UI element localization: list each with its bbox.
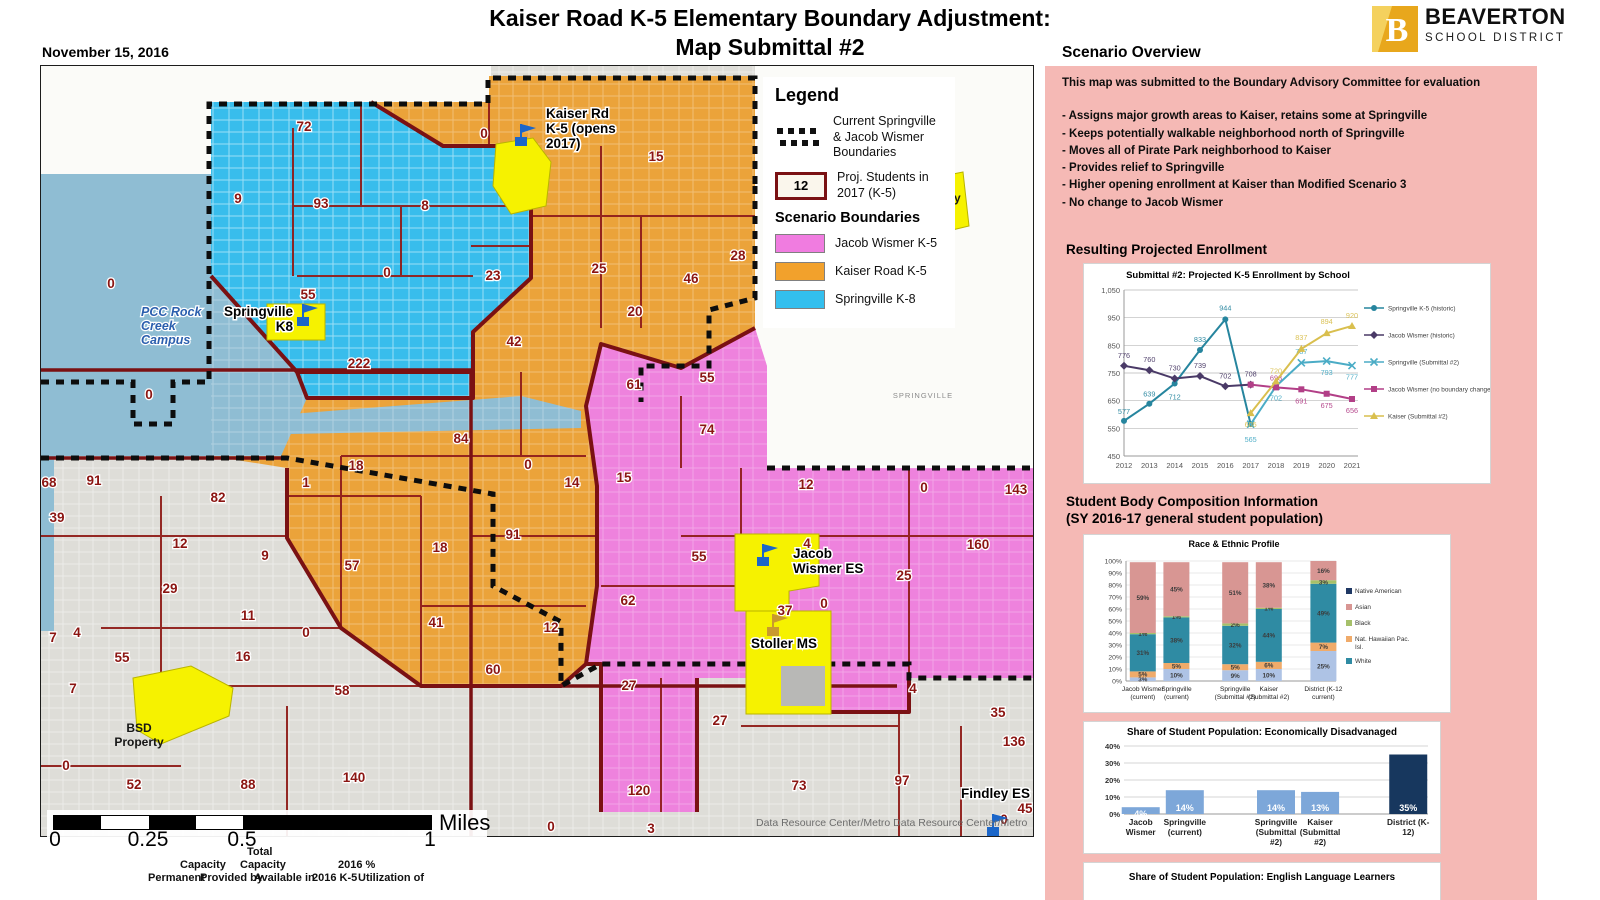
region-student-count: 57: [344, 558, 359, 573]
school-label: K-5 (opens: [546, 121, 616, 136]
scenario-intro: This map was submitted to the Boundary A…: [1062, 75, 1492, 92]
chart-element: 5%: [1231, 664, 1241, 671]
chart-element: 59%: [1136, 594, 1149, 601]
map-date: November 15, 2016: [42, 44, 169, 60]
place-label-bsd: BSD: [126, 721, 152, 735]
chart-element: [1197, 347, 1203, 353]
region-student-count: 91: [505, 527, 521, 542]
region-student-count: 0: [480, 126, 488, 141]
chart-element: 691: [1295, 396, 1307, 405]
chart-element: 20%: [1105, 776, 1120, 785]
region-student-count: 12: [543, 620, 558, 635]
region-student-count: 29: [162, 581, 177, 596]
region-student-count: 18: [348, 458, 364, 473]
chart-element: Jacob Wismer (historic): [1388, 332, 1455, 339]
region-student-count: 143: [1005, 482, 1028, 497]
chart-element: 5%: [1138, 671, 1148, 678]
region-student-count: 73: [791, 778, 807, 793]
chart-element: 35%: [1399, 803, 1417, 813]
chart-element: Springville (Submittal #2): [1388, 359, 1459, 366]
legend-current-boundaries: Current Springville & Jacob Wismer Bound…: [775, 114, 943, 161]
chart-element: 920: [1346, 311, 1358, 320]
region-student-count: 0: [547, 819, 555, 834]
chart-element: [1124, 366, 1251, 386]
school-label: Springville: [224, 304, 294, 319]
region-student-count: 27: [712, 713, 727, 728]
chart-element: Springville: [1164, 817, 1207, 827]
scenario-bullet: - No change to Jacob Wismer: [1062, 195, 1511, 212]
zone-label: Kaiser Road K-5: [835, 264, 927, 280]
region-student-count: 0: [383, 265, 391, 280]
region-student-count: 25: [896, 568, 912, 583]
side-panel: Scenario Overview This map was submitted…: [1045, 44, 1537, 900]
place-label-pcc: Campus: [141, 333, 190, 347]
chart-element: 3%: [1319, 579, 1329, 586]
chart-element: 702: [1270, 393, 1282, 402]
chart-element: 45%: [1170, 586, 1183, 593]
chart-element: 38%: [1262, 582, 1275, 589]
region-student-count: 93: [313, 196, 329, 211]
chart-element: [1324, 391, 1330, 397]
region-student-count: 27: [621, 678, 636, 693]
chart-element: 650: [1107, 396, 1120, 405]
region-student-count: 58: [334, 683, 350, 698]
chart-element: 51%: [1229, 590, 1242, 597]
capacity-header-cell: Available in: [254, 872, 315, 884]
chart-element: [1120, 362, 1128, 370]
chart-element: [1346, 658, 1352, 664]
chart-element: [1222, 316, 1228, 322]
chart-element: 750: [1107, 369, 1120, 378]
econ-disadvantaged-chart: Share of Student Population: Economicall…: [1083, 721, 1441, 854]
chart-element: Nat. Hawaiian Pac.: [1355, 636, 1410, 643]
region-student-count: 74: [699, 422, 715, 437]
region-student-count: 0: [920, 480, 928, 495]
place-label-bsd: Property: [114, 735, 164, 749]
region-student-count: 8: [421, 198, 429, 213]
zone-swatch: [775, 262, 825, 281]
school-label: Wismer ES: [793, 561, 863, 576]
chart-element: 639: [1143, 389, 1155, 398]
school-label: Kaiser Rd: [546, 106, 609, 121]
chart-element: Race & Ethnic Profile: [1188, 539, 1279, 549]
chart-element: [1370, 331, 1378, 339]
legend-zone-kaiser-road-k-5: Kaiser Road K-5: [775, 262, 943, 281]
region-student-count: 97: [894, 773, 909, 788]
chart-element: 14%: [1176, 803, 1194, 813]
enrollment-chart: Submittal #2: Projected K-5 Enrollment b…: [1083, 263, 1491, 484]
chart-element: [1124, 319, 1251, 424]
chart-element: 720: [1270, 366, 1282, 375]
chart-element: 90%: [1108, 570, 1122, 577]
region-student-count: 222: [348, 356, 371, 371]
region-student-count: 18: [432, 540, 448, 555]
legend-zone-jacob-wismer-k-5: Jacob Wismer K-5: [775, 234, 943, 253]
chart-element: Isl.: [1355, 644, 1363, 651]
zone-swatch: [775, 234, 825, 253]
region-student-count: 28: [730, 248, 746, 263]
district-logo-name: BEAVERTON: [1425, 6, 1566, 28]
chart-element: Wismer: [1126, 827, 1157, 837]
region-student-count: 91: [86, 473, 102, 488]
chart-element: 25%: [1317, 663, 1330, 670]
region-student-count: 39: [49, 510, 64, 525]
zone-swatch: [775, 290, 825, 309]
chart-element: 656: [1346, 406, 1358, 415]
chart-element: Submittal #2: Projected K-5 Enrollment b…: [1126, 270, 1350, 281]
region-student-count: 3: [647, 821, 655, 836]
chart-element: 702: [1219, 371, 1231, 380]
capacity-header-cell: 2016 %: [338, 859, 375, 871]
region-student-count: 82: [210, 490, 225, 505]
chart-element: 30%: [1105, 759, 1120, 768]
chart-element: 2015: [1192, 461, 1209, 470]
chart-element: 2016: [1217, 461, 1234, 470]
chart-element: Share of Student Population: Economicall…: [1127, 727, 1397, 738]
chart-element: (current): [1164, 694, 1189, 701]
region-student-count: 16: [235, 649, 251, 664]
scenario-bullet: - Provides relief to Springville: [1062, 160, 1511, 177]
stoller-building: [781, 666, 825, 706]
school-label: K8: [276, 319, 294, 334]
chart-element: 2012: [1116, 461, 1133, 470]
legend-proj-students: 12 Proj. Students in 2017 (K-5): [775, 170, 943, 201]
map-legend-heading: Legend: [775, 85, 943, 106]
chart-element: 13%: [1311, 803, 1329, 813]
region-student-count: 61: [626, 377, 642, 392]
legend-current-label: Current Springville & Jacob Wismer Bound…: [833, 114, 943, 161]
chart-element: 50%: [1108, 618, 1122, 625]
region-student-count: 0: [145, 387, 153, 402]
region-student-count: 88: [240, 777, 256, 792]
chart-element: 837: [1295, 333, 1307, 342]
place-label-pcc: Creek: [141, 319, 177, 333]
chart-element: [1348, 322, 1356, 329]
chart-element: Kaiser: [1259, 686, 1278, 693]
chart-element: 777: [1346, 372, 1358, 381]
region-student-count: 0: [524, 457, 532, 472]
scenario-bullet: - Higher opening enrollment at Kaiser th…: [1062, 177, 1511, 194]
ell-chart: Share of Student Population: English Lan…: [1083, 862, 1441, 900]
region-student-count: 55: [114, 650, 130, 665]
chart-element: 577: [1118, 407, 1130, 416]
region-student-count: 14: [564, 475, 580, 490]
chart-element: 14%: [1267, 803, 1285, 813]
region-student-count: 4: [73, 625, 81, 640]
chart-element: 49%: [1317, 610, 1330, 617]
region-student-count: 68: [41, 475, 57, 490]
proj-students-box: 12: [775, 172, 827, 200]
region-student-count: 45: [1017, 801, 1033, 816]
chart-element: 2018: [1268, 461, 1285, 470]
chart-element: current): [1312, 694, 1335, 701]
zone-label: Jacob Wismer K-5: [835, 236, 937, 252]
chart-element: 944: [1219, 303, 1231, 312]
chart-element: 605: [1245, 420, 1257, 429]
chart-element: Share of Student Population: English Lan…: [1129, 872, 1396, 883]
capacity-header-cell: Capacity: [240, 859, 286, 871]
chart-element: Springville K-5 (historic): [1388, 305, 1455, 312]
scenario-bullet: - Assigns major growth areas to Kaiser, …: [1062, 108, 1511, 125]
boundary-map: PCC RockCreekCampusBSDPropertyBSDPropert…: [40, 65, 1034, 837]
chart-element: 5%: [1172, 663, 1182, 670]
chart-element: 850: [1107, 341, 1120, 350]
region-student-count: 55: [300, 287, 316, 302]
school-label: 2017): [546, 136, 581, 151]
region-student-count: 7: [69, 681, 77, 696]
chart-element: 760: [1143, 355, 1155, 364]
scalebar-unit: Miles: [439, 810, 490, 836]
region-student-count: 20: [627, 304, 642, 319]
chart-element: [1346, 588, 1352, 594]
chart-element: 60%: [1108, 606, 1122, 613]
chart-element: (current): [1168, 827, 1202, 837]
region-student-count: 55: [691, 549, 707, 564]
chart-element: 10%: [1262, 672, 1275, 679]
scalebar-tick: 0.25: [128, 828, 169, 852]
chart-element: 30%: [1108, 642, 1122, 649]
chart-element: Springville: [1161, 686, 1192, 693]
chart-element: 565: [1245, 435, 1257, 444]
chart-element: 2020: [1318, 461, 1335, 470]
chart-element: District (K-12: [1304, 686, 1342, 693]
chart-element: [1146, 400, 1152, 406]
region-student-count: 23: [485, 268, 501, 283]
chart-element: 40%: [1105, 742, 1120, 751]
chart-element: [1346, 604, 1352, 610]
district-logo-subtitle: SCHOOL DISTRICT: [1425, 32, 1566, 44]
chart-element: 9%: [1231, 672, 1241, 679]
chart-element: 776: [1118, 351, 1130, 360]
school-label: Stoller MS: [751, 636, 817, 651]
dashed-boundary-icon: [775, 125, 823, 149]
chart-element: 712: [1169, 392, 1181, 401]
scalebar-segment: [54, 816, 101, 829]
region-student-count: 72: [296, 119, 311, 134]
chart-element: 2017: [1242, 461, 1259, 470]
chart-element: #2): [1270, 837, 1282, 847]
region-student-count: 12: [172, 536, 187, 551]
chart-element: 100%: [1105, 558, 1122, 565]
chart-element: White: [1355, 658, 1372, 665]
region-student-count: 62: [620, 593, 635, 608]
chart-element: 550: [1107, 424, 1120, 433]
chart-element: 2021: [1344, 461, 1361, 470]
scenario-bullet: - Keeps potentially walkable neighborhoo…: [1062, 126, 1511, 143]
chart-element: 1,050: [1101, 286, 1120, 295]
chart-element: Kaiser (Submittal #2): [1388, 413, 1448, 420]
chart-element: (Submittal #2): [1248, 694, 1289, 701]
zone-label: Springville K-8: [835, 292, 916, 308]
chart-element: #2): [1314, 837, 1326, 847]
region-student-count: 160: [967, 537, 990, 552]
chart-element: Springville: [1220, 686, 1251, 693]
region-student-count: 140: [343, 770, 366, 785]
chart-element: District (K-: [1387, 817, 1430, 827]
region-student-count: 4: [909, 681, 917, 696]
page-title-line1: Kaiser Road K-5 Elementary Boundary Adju…: [400, 4, 1140, 33]
chart-element: 793: [1321, 368, 1333, 377]
region-student-count: 12: [798, 477, 813, 492]
scenario-overview-text: This map was submitted to the Boundary A…: [1062, 75, 1511, 212]
region-student-count: 46: [683, 271, 699, 286]
chart-element: [1221, 382, 1229, 390]
region-student-count: 35: [990, 705, 1006, 720]
composition-heading: Student Body Composition Information (SY…: [1066, 494, 1537, 528]
chart-element: 0%: [1112, 678, 1122, 685]
chart-element: Springville: [1255, 817, 1298, 827]
chart-element: [1346, 620, 1352, 626]
region-student-count: 0: [107, 276, 115, 291]
page: November 15, 2016 Kaiser Road K-5 Elemen…: [0, 0, 1600, 900]
region-student-count: 11: [241, 608, 256, 623]
chart-element: 80%: [1108, 582, 1122, 589]
region-student-count: 0: [62, 758, 70, 773]
region-student-count: 9: [261, 548, 269, 563]
chart-element: (current): [1130, 694, 1155, 701]
scenario-boundaries-heading: Scenario Boundaries: [775, 210, 943, 226]
chart-element: Native American: [1355, 588, 1402, 595]
chart-element: 16%: [1317, 567, 1330, 574]
page-title: Kaiser Road K-5 Elementary Boundary Adju…: [400, 4, 1140, 62]
legend-proj-label: Proj. Students in 2017 (K-5): [837, 170, 943, 201]
chart-element: [1349, 396, 1355, 402]
chart-element: 0%: [1109, 810, 1120, 819]
chart-element: 708: [1245, 369, 1257, 378]
region-student-count: 15: [648, 149, 664, 164]
chart-element: Kaiser: [1307, 817, 1333, 827]
scenario-panel: This map was submitted to the Boundary A…: [1045, 66, 1537, 900]
chart-element: 38%: [1170, 637, 1183, 644]
chart-element: 739: [1194, 361, 1206, 370]
chart-element: 7%: [1319, 644, 1329, 651]
chart-element: Jacob: [1129, 817, 1153, 827]
scenario-bullet: - Moves all of Pirate Park neighborhood …: [1062, 143, 1511, 160]
chart-element: 10%: [1108, 666, 1122, 673]
capacity-header-cell: Total: [247, 846, 272, 858]
legend-zone-springville-k-8: Springville K-8: [775, 290, 943, 309]
region-student-count: 15: [616, 470, 632, 485]
region-student-count: 7: [49, 630, 57, 645]
chart-element: 40%: [1108, 630, 1122, 637]
capacity-header-cell: Utilization of: [358, 872, 424, 884]
school-label: Findley ES: [961, 786, 1030, 801]
chart-element: [1248, 381, 1254, 387]
scalebar-segment: [243, 816, 431, 829]
chart-element: 70%: [1108, 594, 1122, 601]
region-student-count: 9: [234, 191, 242, 206]
place-label-road: SPRINGVILLE: [893, 391, 953, 400]
chart-element: 950: [1107, 313, 1120, 322]
chart-element: Black: [1355, 620, 1371, 627]
chart-element: (Submittal: [1300, 827, 1341, 837]
chart-element: 10%: [1170, 672, 1183, 679]
chart-element: [1371, 386, 1377, 392]
chart-element: [1121, 418, 1127, 424]
region-student-count: 0: [820, 596, 828, 611]
region-student-count: 1: [302, 475, 310, 490]
chart-element: Jacob Wismer (no boundary change): [1388, 386, 1490, 393]
chart-element: 675: [1321, 401, 1333, 410]
scalebar-tick: 0: [49, 828, 61, 852]
region-student-count: 42: [506, 334, 521, 349]
chart-element: 894: [1321, 317, 1333, 326]
chart-element: 450: [1107, 452, 1120, 461]
enrollment-heading: Resulting Projected Enrollment: [1066, 242, 1537, 257]
chart-element: 833: [1194, 335, 1206, 344]
district-logo-text: BEAVERTON SCHOOL DISTRICT: [1425, 6, 1566, 44]
page-title-line2: Map Submittal #2: [400, 33, 1140, 62]
chart-element: 31%: [1136, 650, 1149, 657]
place-label-pcc: PCC Rock: [141, 305, 202, 319]
capacity-header-cell: Capacity: [180, 859, 226, 871]
chart-element: 20%: [1108, 654, 1122, 661]
region-student-count: 52: [126, 777, 141, 792]
chart-element: 730: [1169, 363, 1181, 372]
school-label: Jacob: [793, 546, 832, 561]
chart-element: 12): [1402, 827, 1414, 837]
region-student-count: 60: [485, 662, 500, 677]
region-student-count: 84: [453, 431, 469, 446]
race-ethnic-chart: Race & Ethnic Profile0%10%20%30%40%50%60…: [1083, 534, 1451, 713]
region-student-count: 55: [699, 370, 715, 385]
chart-element: 2019: [1293, 461, 1310, 470]
chart-element: 2014: [1166, 461, 1183, 470]
chart-element: Asian: [1355, 604, 1371, 611]
chart-element: [1298, 386, 1304, 392]
region-student-count: 120: [628, 783, 651, 798]
scenario-overview-heading: Scenario Overview: [1062, 44, 1537, 62]
capacity-header-cell: Permanent: [148, 872, 205, 884]
chart-element: 2013: [1141, 461, 1158, 470]
region-student-count: 41: [428, 615, 444, 630]
chart-element: 6%: [1264, 662, 1274, 669]
chart-element: 44%: [1262, 632, 1275, 639]
map-attribution: Data Resource Center/Metro Data Resource…: [756, 817, 1028, 829]
region-student-count: 136: [1003, 734, 1026, 749]
region-student-count: 25: [591, 261, 607, 276]
chart-element: 10%: [1105, 793, 1120, 802]
capacity-header-cell: 2016 K-5: [312, 872, 357, 884]
composition-heading-line2: (SY 2016-17 general student population): [1066, 511, 1537, 528]
chart-element: 32%: [1229, 642, 1242, 649]
chart-element: [1346, 636, 1352, 642]
chart-element: (Submittal: [1256, 827, 1297, 837]
chart-element: Jacob Wismer: [1122, 686, 1165, 693]
map-legend: Legend Current Springville & Jacob Wisme…: [763, 77, 955, 328]
chart-element: [1371, 305, 1377, 311]
region-student-count: 37: [777, 603, 792, 618]
scalebar-tick: 1: [424, 828, 436, 852]
composition-heading-line1: Student Body Composition Information: [1066, 494, 1537, 511]
region-student-count: 0: [302, 625, 310, 640]
